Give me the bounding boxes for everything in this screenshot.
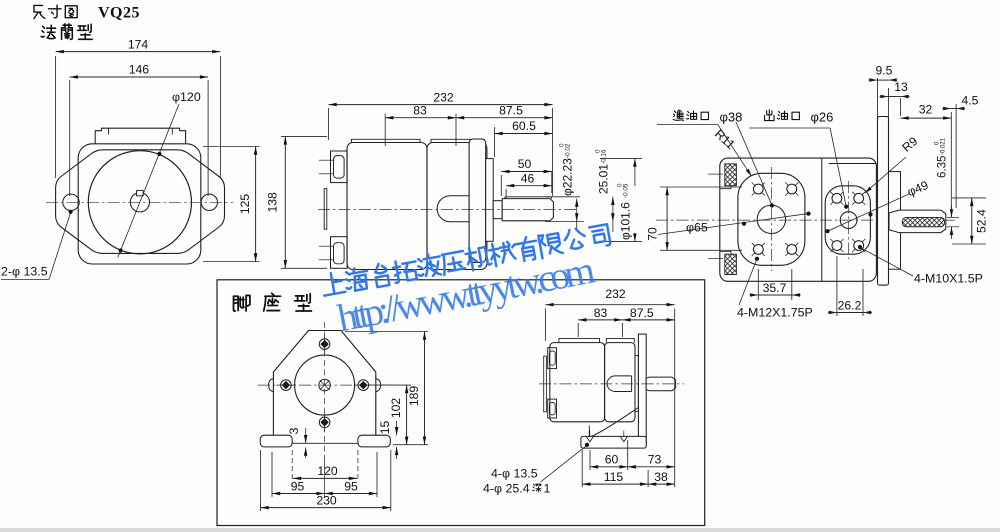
svg-text:70: 70 [646,227,660,241]
svg-text:4.5: 4.5 [962,94,979,108]
svg-text:146: 146 [129,63,150,77]
svg-text:60: 60 [605,453,619,467]
svg-text:φ38: φ38 [720,109,743,124]
svg-text:2-φ 13.5: 2-φ 13.5 [1,265,48,279]
svg-text:φ65: φ65 [686,221,708,235]
svg-text:83: 83 [594,306,608,320]
svg-text:52.4: 52.4 [975,209,989,233]
svg-text:φ22.23: φ22.23 [561,158,575,196]
svg-text:13: 13 [894,80,908,94]
svg-text:50: 50 [518,157,532,171]
svg-text:174: 174 [128,37,149,51]
svg-text:-0.05: -0.05 [623,183,630,198]
svg-text:4-M10X1.5P: 4-M10X1.5P [914,272,983,286]
svg-text:95: 95 [291,479,305,493]
svg-text:83: 83 [413,103,427,117]
svg-text:102: 102 [389,398,403,419]
svg-text:230: 230 [316,493,337,507]
svg-text:232: 232 [433,90,454,104]
svg-text:-0.16: -0.16 [601,149,608,164]
svg-text:189: 189 [407,386,421,407]
svg-text:138: 138 [266,192,280,213]
svg-text:6.35: 6.35 [937,156,949,178]
svg-text:95: 95 [344,479,358,493]
svg-text:232: 232 [605,287,626,301]
svg-text:35.7: 35.7 [763,281,787,295]
svg-text:3: 3 [287,427,301,434]
svg-text:φ120: φ120 [172,90,201,104]
svg-text:25.01: 25.01 [597,164,611,194]
svg-text:4-φ 25.4: 4-φ 25.4 [483,482,530,496]
svg-text:1: 1 [544,482,551,496]
svg-text:φ101.6: φ101.6 [619,202,633,240]
svg-text:32: 32 [919,103,933,117]
svg-text:15: 15 [378,421,392,435]
svg-text:-0.02: -0.02 [565,143,572,158]
svg-text:87.5: 87.5 [630,306,654,320]
svg-text:-0.021: -0.021 [941,137,947,155]
svg-text:4-φ 13.5: 4-φ 13.5 [491,466,538,480]
svg-text:87.5: 87.5 [499,103,523,117]
svg-text:4-M12X1.75P: 4-M12X1.75P [737,306,813,320]
svg-text:125: 125 [238,194,252,215]
svg-text:46: 46 [521,171,535,185]
svg-text:120: 120 [317,464,338,478]
svg-text:38: 38 [654,470,668,484]
svg-text:26.2: 26.2 [838,298,862,312]
svg-text:φ26: φ26 [811,109,834,124]
svg-text:115: 115 [604,470,624,484]
svg-text:73: 73 [648,453,662,467]
svg-text:9.5: 9.5 [876,64,893,78]
svg-text:60.5: 60.5 [512,119,536,133]
svg-text:VQ25: VQ25 [98,5,140,22]
